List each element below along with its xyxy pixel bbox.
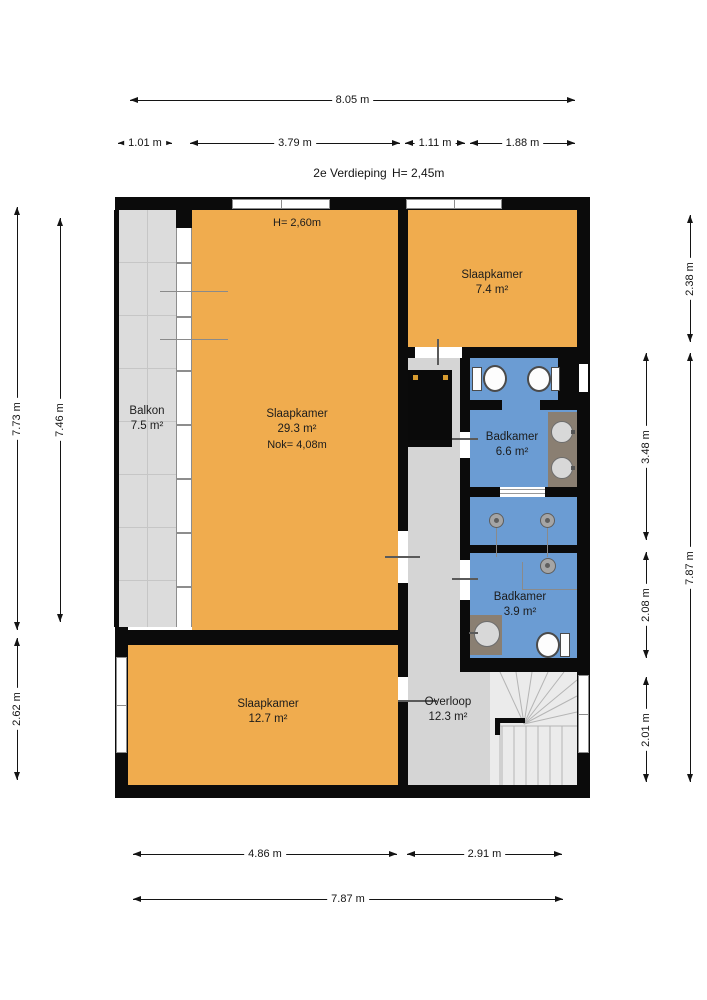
floor-height-label: H= 2,45m [392,166,444,180]
window [116,657,127,753]
floor-title: 2e Verdieping [313,166,386,180]
wall [460,658,590,672]
wall [460,487,500,497]
shower-icon [540,558,556,574]
sink-icon [551,457,573,479]
door-mark [452,438,478,440]
room-area: 29.3 m² [266,422,327,437]
toilet-icon [527,366,551,392]
room-name: Slaapkamer [461,268,522,283]
wall [115,630,408,645]
room-area: 12.7 m² [237,712,298,727]
toilet-icon [483,365,507,392]
shower-icon [489,513,504,528]
sink-icon [551,421,573,443]
staircase [490,672,577,785]
room-label-overloop: Overloop 12.3 m² [425,695,472,725]
door-mark [437,339,439,365]
door-mark [452,578,478,580]
door-opening [398,677,408,700]
sliding-door [500,487,545,497]
room-label-badkamer-groot: Badkamer 6.6 m² [486,430,538,460]
toilet-icon [560,633,570,657]
staircase-treads [490,672,577,785]
tap-icon [571,430,575,434]
wall [540,400,577,410]
room-name: Badkamer [494,590,546,605]
wall [558,358,577,400]
shaft-dot [413,375,418,380]
wall [398,645,408,785]
shower-icon [540,513,555,528]
wall [115,785,590,798]
window [406,199,502,209]
balcony-edge [114,210,119,627]
roof-line [160,339,228,340]
room-name: Badkamer [486,430,538,445]
shower-screen [522,562,523,590]
room-label-slaapkamer-groot: Slaapkamer 29.3 m² Nok= 4,08m [266,407,327,453]
window [232,199,330,209]
tap-icon [469,632,478,634]
floorplan-canvas: 2e Verdieping H= 2,45m [0,0,707,1000]
overloop-floor-2 [460,672,490,785]
stair-wall [495,718,500,735]
room-name: Overloop [425,695,472,710]
room-area: 3.9 m² [494,605,546,620]
room-name: Balkon [129,404,164,419]
door-opening [460,432,470,458]
room-area: 12.3 m² [425,710,472,725]
wall [460,400,502,410]
ridge-height-label: Nok= 4,08m [266,438,327,453]
wall-niche [579,364,588,392]
door-mark [385,556,420,558]
wall [460,358,470,432]
room-label-balkon: Balkon 7.5 m² [129,404,164,434]
room-label-slaapkamer-rechts: Slaapkamer 7.4 m² [461,268,522,298]
wall [176,210,192,228]
room-label-badkamer-klein: Badkamer 3.9 m² [494,590,546,620]
shaft [408,370,452,447]
ceiling-height-label: H= 2,60m [273,216,321,231]
room-area: 7.5 m² [129,419,164,434]
toilet-icon [472,367,482,391]
window [578,675,589,753]
room-label-slaapkamer-onder: Slaapkamer 12.7 m² [237,697,298,727]
wall [398,197,408,531]
room-name: Slaapkamer [266,407,327,422]
wall [545,487,577,497]
room-area: 7.4 m² [461,283,522,298]
toilet-icon [536,632,560,658]
room-area: 6.6 m² [486,445,538,460]
balcony-glass-sliding-wall [176,210,192,627]
wall [115,197,577,210]
shaft-dot [443,375,448,380]
door-opening [460,560,470,600]
wall [460,545,577,553]
tap-icon [571,466,575,470]
room-name: Slaapkamer [237,697,298,712]
toilet-icon [551,367,560,391]
sink-icon [474,621,500,647]
roof-line [160,291,228,292]
